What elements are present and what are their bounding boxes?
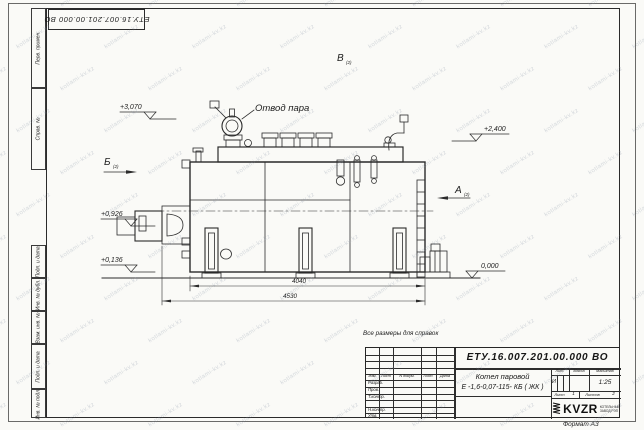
elevation-3070: +3,070 — [120, 104, 142, 111]
scale-label: Масштаб — [589, 368, 621, 375]
view-marker-v-ref: (2) — [346, 60, 352, 65]
top-hatches — [262, 133, 332, 147]
drawing-sheet: Перв. примен. Справ. № Подп. и дата Инв.… — [0, 0, 644, 430]
lit-label: Лит. — [551, 368, 569, 375]
spring-icon — [552, 402, 561, 415]
company-name-line2: ЗАВОД РЭП — [600, 409, 620, 413]
title-doc-number: ЕТУ.16.007.201.00.000 ВО — [454, 348, 621, 368]
level-gauges — [336, 156, 377, 188]
burner — [117, 206, 190, 244]
company-logo: KVZR — [563, 403, 598, 415]
product-name-line1: Котел паровой — [454, 371, 551, 382]
col-ndokum: N докум. — [393, 374, 421, 380]
row-utv: Утв. — [366, 413, 393, 419]
view-arrows — [104, 170, 470, 200]
safety-valve — [210, 101, 242, 147]
col-data: Дата — [436, 374, 454, 380]
sheets-label: Листов — [579, 391, 606, 398]
row-prov: Пров. — [366, 387, 393, 394]
feed-pump — [417, 244, 450, 278]
sheet-number: 1 — [568, 391, 579, 398]
elevation-0926: +0,926 — [101, 211, 123, 218]
view-marker-a-ref: (2) — [464, 192, 470, 197]
lit-value: И — [551, 375, 557, 391]
support-legs — [202, 228, 409, 278]
row-tkontr: Т.контр. — [366, 394, 393, 400]
elevation-0000: 0,000 — [481, 263, 499, 270]
product-name-line2: Е -1,6-0,07-115- КБ ( ЖК ) — [454, 382, 551, 393]
view-marker-b-ref: (2) — [113, 164, 119, 169]
title-block: Изм. Лист N докум. Подп. Дата Разраб. Пр… — [365, 347, 620, 418]
elevation-0136: +0,136 — [101, 257, 123, 264]
stop-valve — [384, 115, 408, 150]
mass-label: Масса — [569, 368, 589, 375]
elevation-2400: +2,400 — [484, 126, 506, 133]
col-podp: Подп. — [421, 374, 436, 380]
rear-ladder — [417, 180, 425, 277]
sheets-total: 2 — [606, 391, 621, 398]
sheet-label: Лист — [551, 391, 568, 398]
reference-note: Все размеры для справок — [363, 330, 438, 337]
company-cell: KVZR КОТЕЛЬНЫЙ ЗАВОД РЭП — [551, 398, 621, 419]
view-marker-a: А — [454, 185, 462, 196]
boiler-shell — [190, 162, 425, 272]
view-marker-v: В — [337, 53, 344, 64]
view-marker-b: Б — [104, 157, 111, 168]
boiler-linework — [101, 101, 509, 305]
steam-outlet-label: Отвод пара — [255, 103, 309, 114]
row-razrab: Разраб. — [366, 380, 393, 387]
dimension-4040: 4040 — [292, 278, 307, 285]
dimension-4530: 4530 — [283, 293, 298, 300]
format-note: Формат А3 — [563, 421, 599, 428]
scale-value: 1:25 — [589, 375, 621, 391]
